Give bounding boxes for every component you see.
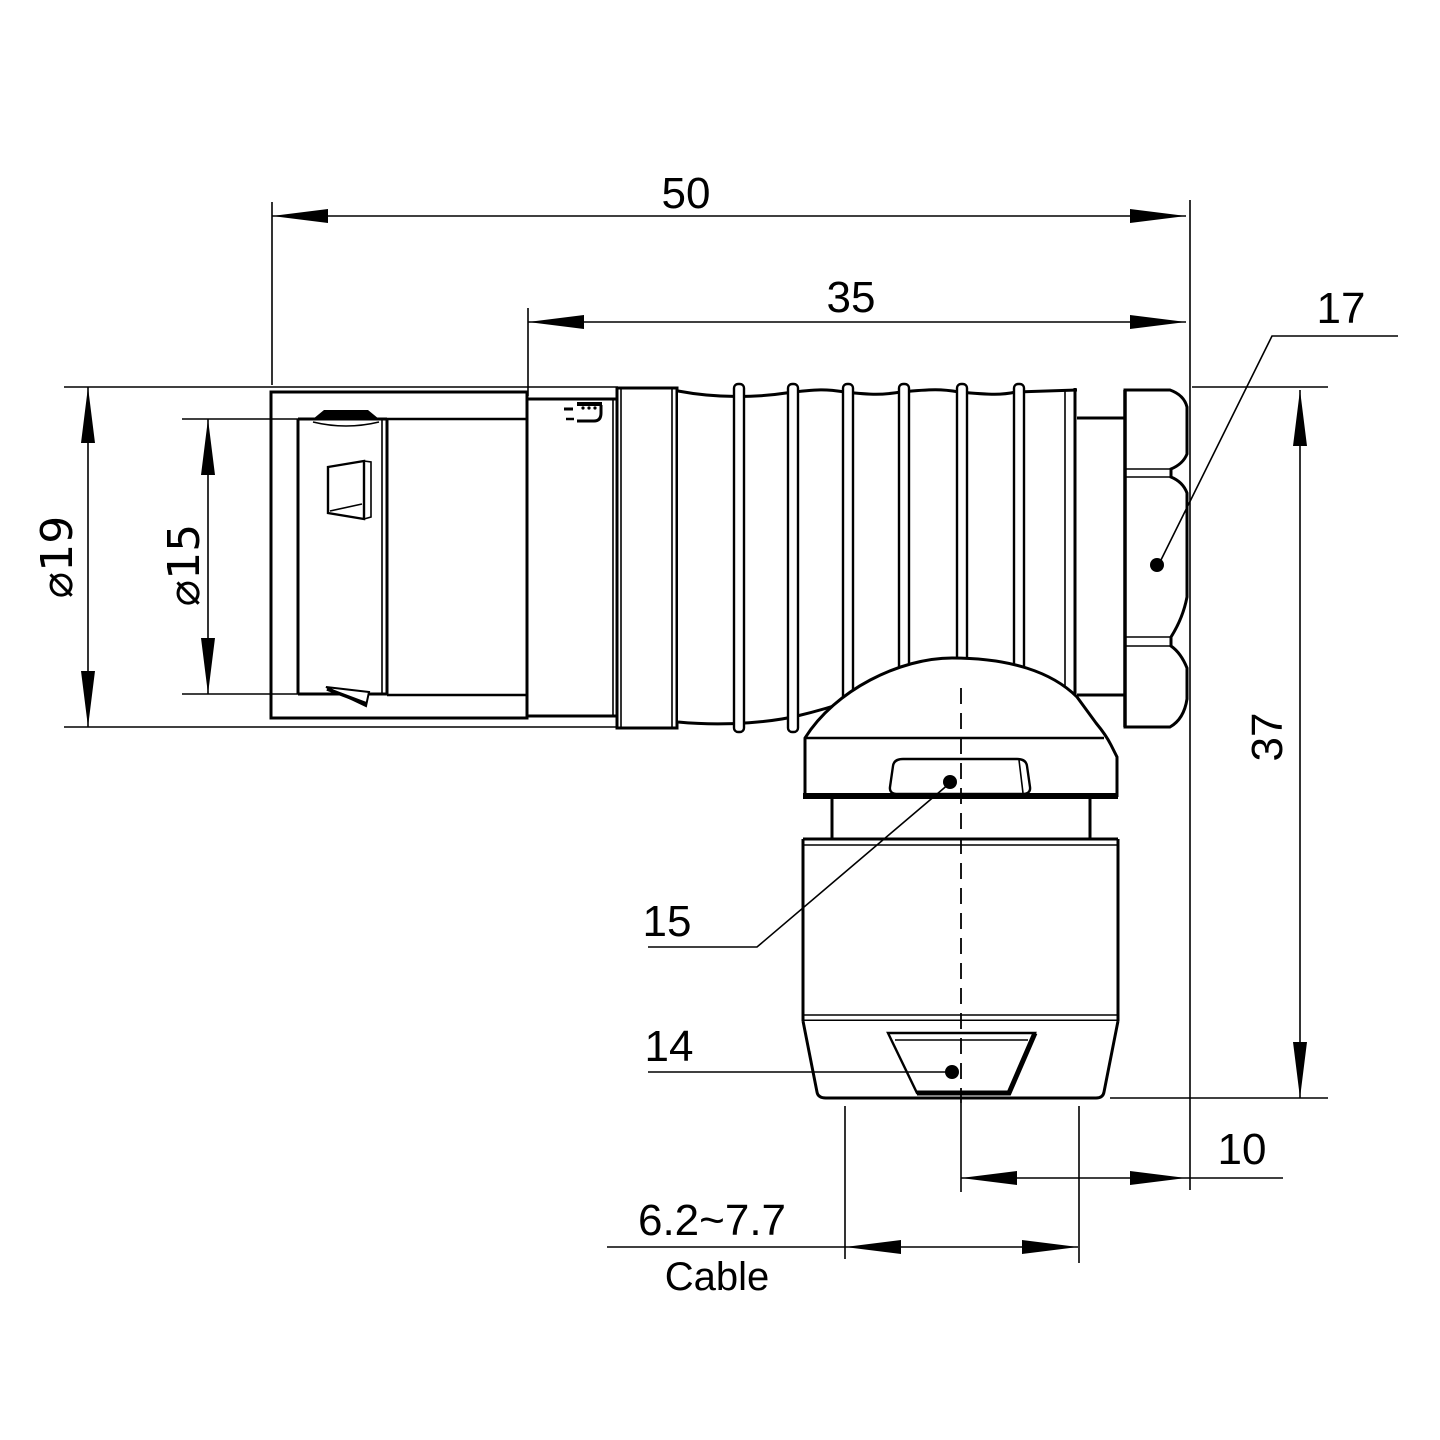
callout-17: 17 (1158, 284, 1398, 566)
callout-15: 15 (643, 783, 950, 947)
dimension-label-35: 35 (827, 273, 876, 322)
callout-label-15: 15 (643, 897, 692, 946)
hex-nut (1125, 390, 1187, 727)
connector-technical-drawing: Lightany (0, 0, 1440, 1440)
dimensions: 50 35 ⌀19 ⌀15 37 (32, 169, 1398, 1299)
dimension-height: 37 (1243, 390, 1307, 1098)
front-shell (271, 392, 527, 718)
dimension-boot-length: 35 (528, 273, 1186, 329)
dimension-overall-length: 50 (272, 169, 1186, 223)
coupling-sleeve (527, 399, 617, 716)
callout-label-17: 17 (1317, 284, 1366, 333)
gland-collet (803, 1021, 1118, 1098)
rear-neck (1077, 418, 1125, 695)
drawing-canvas: Lightany (0, 0, 1440, 1440)
shell-outline (271, 392, 527, 718)
dimension-offset: 10 (961, 1125, 1283, 1185)
callout-label-14: 14 (645, 1022, 694, 1071)
dimension-label-37: 37 (1243, 713, 1292, 762)
gland-window (890, 759, 1030, 794)
dimension-cable-range: 6.2~7.7 Cable (607, 1196, 1078, 1299)
dimension-label-10: 10 (1218, 1125, 1267, 1174)
dimension-label-dia19: ⌀19 (32, 516, 83, 598)
dimension-outer-diameter: ⌀19 (32, 387, 95, 727)
dimension-label-cable-range: 6.2~7.7 (638, 1196, 786, 1245)
key-window (328, 461, 371, 519)
dimension-label-cable: Cable (665, 1255, 770, 1299)
collar-ring (617, 388, 677, 728)
dimension-label-dia15: ⌀15 (159, 524, 210, 606)
dimension-label-50: 50 (662, 169, 711, 218)
leader-dot-17 (1150, 558, 1164, 572)
dimension-inner-diameter: ⌀15 (159, 419, 215, 694)
